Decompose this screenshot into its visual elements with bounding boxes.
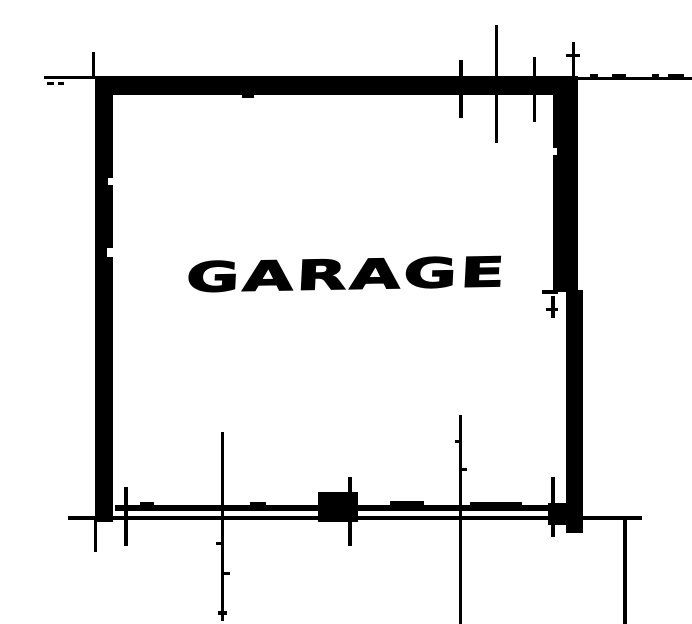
- tick-top-left-dash: [47, 82, 54, 85]
- tick-top-left-dash: [58, 82, 64, 85]
- tick-top-right-vertical: [572, 42, 575, 78]
- dimension-line-bottom-c: [459, 415, 462, 624]
- scan-wall-notch: [107, 248, 113, 257]
- tick-bottom-right-vertical: [551, 477, 555, 537]
- dimension-line-bottom-left-2: [124, 487, 128, 546]
- dimension-tick: [462, 468, 467, 471]
- dimension-line-top-1: [459, 60, 463, 118]
- dimension-line-bottom-a: [221, 432, 224, 621]
- dimension-tick: [224, 572, 230, 575]
- wall-break-tick-horizontal: [542, 290, 558, 294]
- dimension-line-bottom-b: [348, 477, 352, 546]
- wall-break-tick-vertical: [551, 296, 555, 318]
- door-post: [318, 492, 358, 522]
- header-line-bump: [390, 501, 424, 505]
- header-line-bump: [140, 502, 154, 505]
- dimension-line-bottom-right: [623, 518, 627, 624]
- wall-top: [95, 76, 577, 95]
- survey-line-dash: [612, 74, 626, 77]
- dimension-line-top-3: [533, 57, 536, 122]
- scan-dash: [242, 95, 254, 98]
- dimension-line-top-2: [495, 25, 498, 143]
- floor-plan: GARAGE: [0, 0, 692, 624]
- wall-right-upper: [553, 76, 578, 292]
- header-line-bump: [250, 502, 266, 505]
- header-line-bump: [470, 502, 522, 505]
- dimension-tick: [218, 611, 227, 615]
- survey-line-dash: [668, 74, 684, 77]
- wall-left: [95, 76, 113, 522]
- tick-top-left-horizontal: [44, 76, 95, 79]
- room-label-text: GARAGE: [185, 248, 509, 302]
- tick-top-left-vertical: [92, 52, 95, 78]
- dimension-tick: [455, 440, 460, 443]
- dimension-tick: [216, 542, 222, 545]
- wall-break-cross: [546, 308, 558, 311]
- scan-wall-notch: [553, 148, 557, 155]
- survey-line-dash: [590, 74, 598, 77]
- wall-right-lower: [566, 290, 583, 533]
- dimension-line-bottom-left-1: [94, 520, 97, 552]
- tick-top-right-cross: [566, 54, 580, 57]
- survey-line-dash: [652, 74, 659, 77]
- room-label: GARAGE: [173, 241, 520, 311]
- survey-line-top-right: [577, 77, 692, 80]
- scan-wall-notch: [108, 178, 113, 185]
